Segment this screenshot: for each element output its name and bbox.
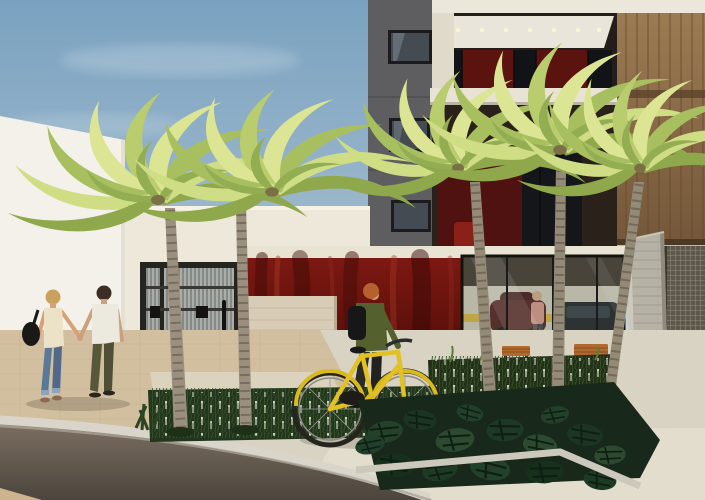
- scene-render: ZA BOTEGUIN 40: [0, 0, 705, 500]
- gate-lockbox: [196, 306, 208, 318]
- apartment-tower: [368, 0, 432, 248]
- monstera-planter: [353, 382, 660, 492]
- holding-hands: [77, 335, 83, 341]
- gate-intercom: [150, 306, 160, 318]
- roof-slab: [432, 0, 705, 13]
- render-canvas: ZA BOTEGUIN 40: [0, 0, 705, 500]
- saddle: [350, 347, 366, 354]
- backpack: [348, 306, 366, 340]
- shoulder-bag: [22, 322, 40, 346]
